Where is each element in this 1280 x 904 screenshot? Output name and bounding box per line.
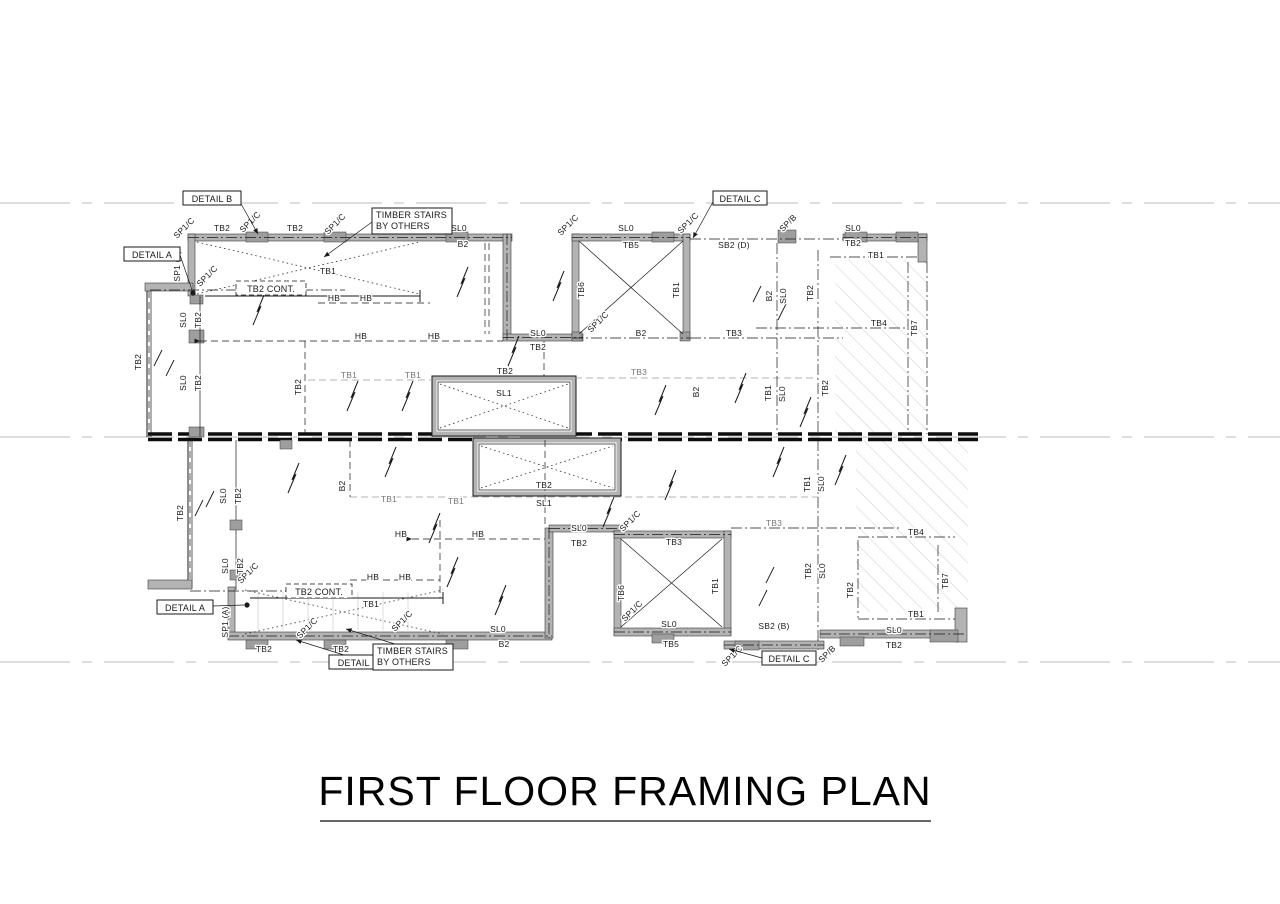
label-tb2: TB2 — [214, 223, 230, 233]
label-b2: B2 — [691, 387, 701, 398]
label-sl0: SL0 — [178, 312, 188, 328]
label-sl0: SL0 — [490, 624, 506, 634]
label-sl1: SL1 — [496, 388, 512, 398]
label-sp1a: SP1 (A) — [220, 606, 230, 637]
label-tb1: TB1 — [671, 282, 681, 298]
label-tb2: TB2 — [805, 285, 815, 301]
label-sl0: SL0 — [178, 375, 188, 391]
label-tb2: TB2 — [256, 644, 272, 654]
label-tb2: TB2 — [845, 238, 861, 248]
label-tb2: TB2 — [536, 480, 552, 490]
label-sl0: SL0 — [218, 488, 228, 504]
label-tb1: TB1 — [341, 370, 357, 380]
label-tb1: TB1 — [802, 476, 812, 492]
label-tb5: TB5 — [663, 639, 679, 649]
label-sl0: SL0 — [778, 288, 788, 304]
label-tb2: TB2 — [845, 582, 855, 598]
detail-b-bottom-callout: DETAIL B — [338, 658, 379, 668]
label-sp1c: SP1/C — [389, 608, 414, 633]
label-tb7: TB7 — [909, 320, 919, 336]
label-tb2: TB2 — [193, 312, 203, 328]
label-tb3: TB3 — [631, 367, 647, 377]
label-tb1: TB1 — [381, 494, 397, 504]
label-sl0: SL0 — [845, 223, 861, 233]
detail-b-callout: DETAIL B — [192, 194, 233, 204]
label-sb2d: SB2 (D) — [718, 240, 750, 250]
page-title: FIRST FLOOR FRAMING PLAN — [318, 768, 931, 814]
label-sl0: SL0 — [661, 619, 677, 629]
label-tb2: TB2 — [530, 342, 546, 352]
label-sl0: SL0 — [220, 558, 230, 574]
label-sl0: SL0 — [817, 563, 827, 579]
label-sp1c: SP1/C — [194, 263, 219, 288]
plan-title-block: FIRST FLOOR FRAMING PLAN — [318, 768, 931, 821]
framing-plan-drawing: SP1/C TB2 SP1/C TB2 SP1/C SL0 B2 SP1/C S… — [0, 0, 1280, 904]
timber-stairs-note-line2: BY OTHERS — [376, 221, 430, 231]
label-sl0: SL0 — [571, 523, 587, 533]
label-tb2: TB2 — [820, 380, 830, 396]
label-b2: B2 — [337, 481, 347, 492]
label-tb4: TB4 — [871, 318, 887, 328]
label-hb: HB — [360, 293, 372, 303]
detail-a-bottom-callout: DETAIL A — [165, 603, 205, 613]
tb2-cont-label: TB2 CONT. — [247, 284, 295, 294]
label-hb: HB — [428, 331, 440, 341]
label-tb1: TB1 — [320, 266, 336, 276]
label-hb: HB — [328, 293, 340, 303]
label-sp1c: SP1/C — [585, 309, 610, 334]
timber-stairs-bottom-note-line2: BY OTHERS — [377, 657, 431, 667]
label-tb1: TB1 — [868, 250, 884, 260]
label-hb: HB — [367, 572, 379, 582]
terrace-hatch-top — [835, 260, 927, 436]
label-tb6: TB6 — [616, 585, 626, 601]
terrace-hatch — [835, 260, 968, 612]
label-sl0: SL0 — [618, 223, 634, 233]
label-hb: HB — [472, 529, 484, 539]
timber-stairs-note-line1: TIMBER STAIRS — [376, 210, 447, 220]
label-tb1: TB1 — [448, 496, 464, 506]
label-tb2: TB2 — [803, 563, 813, 579]
label-tb2: TB2 — [497, 366, 513, 376]
label-hb: HB — [395, 529, 407, 539]
label-tb2: TB2 — [233, 488, 243, 504]
label-sp1c: SP1/C — [237, 209, 262, 234]
framing-plan-sheet: SP1/C TB2 SP1/C TB2 SP1/C SL0 B2 SP1/C S… — [0, 0, 1280, 904]
label-sl0: SL0 — [777, 386, 787, 402]
label-b2: B2 — [458, 239, 469, 249]
label-tb2: TB2 — [287, 223, 303, 233]
label-tb1: TB1 — [710, 578, 720, 594]
label-tb6: TB6 — [576, 282, 586, 298]
timber-stairs-bottom-note-line1: TIMBER STAIRS — [377, 646, 448, 656]
label-tb1: TB1 — [763, 385, 773, 401]
label-b2: B2 — [499, 639, 510, 649]
label-sb2b: SB2 (B) — [758, 621, 789, 631]
label-tb2: TB2 — [886, 640, 902, 650]
tb2-cont-bottom-label: TB2 CONT. — [295, 587, 343, 597]
detail-a-callout: DETAIL A — [132, 250, 172, 260]
label-tb5: TB5 — [623, 240, 639, 250]
label-sl0: SL0 — [816, 476, 826, 492]
terrace-hatch-bottom — [856, 440, 968, 612]
label-sl0: SL0 — [451, 223, 467, 233]
label-tb1: TB1 — [405, 370, 421, 380]
label-tb4: TB4 — [908, 527, 924, 537]
detail-c-bottom-callout: DETAIL C — [768, 654, 809, 664]
label-tb3: TB3 — [766, 518, 782, 528]
label-tb2: TB2 — [571, 538, 587, 548]
label-tb7: TB7 — [940, 573, 950, 589]
label-tb2: TB2 — [193, 375, 203, 391]
stairwell-openings — [197, 241, 722, 634]
label-tb3: TB3 — [666, 537, 682, 547]
label-sl1: SL1 — [536, 498, 552, 508]
label-b2: B2 — [636, 328, 647, 338]
detail-c-callout: DETAIL C — [719, 194, 760, 204]
label-sp1c: SP1/C — [555, 212, 580, 237]
label-tb2: TB2 — [133, 354, 143, 370]
label-tb3: TB3 — [726, 328, 742, 338]
label-b2: B2 — [764, 291, 774, 302]
label-sl0: SL0 — [886, 625, 902, 635]
label-tb1: TB1 — [908, 609, 924, 619]
label-tb2: TB2 — [293, 379, 303, 395]
label-hb: HB — [355, 331, 367, 341]
label-tb1: TB1 — [363, 599, 379, 609]
label-sl0: SL0 — [530, 328, 546, 338]
label-sp1c: SP1/C — [617, 508, 642, 533]
label-hb: HB — [399, 572, 411, 582]
label-tb2: TB2 — [175, 505, 185, 521]
